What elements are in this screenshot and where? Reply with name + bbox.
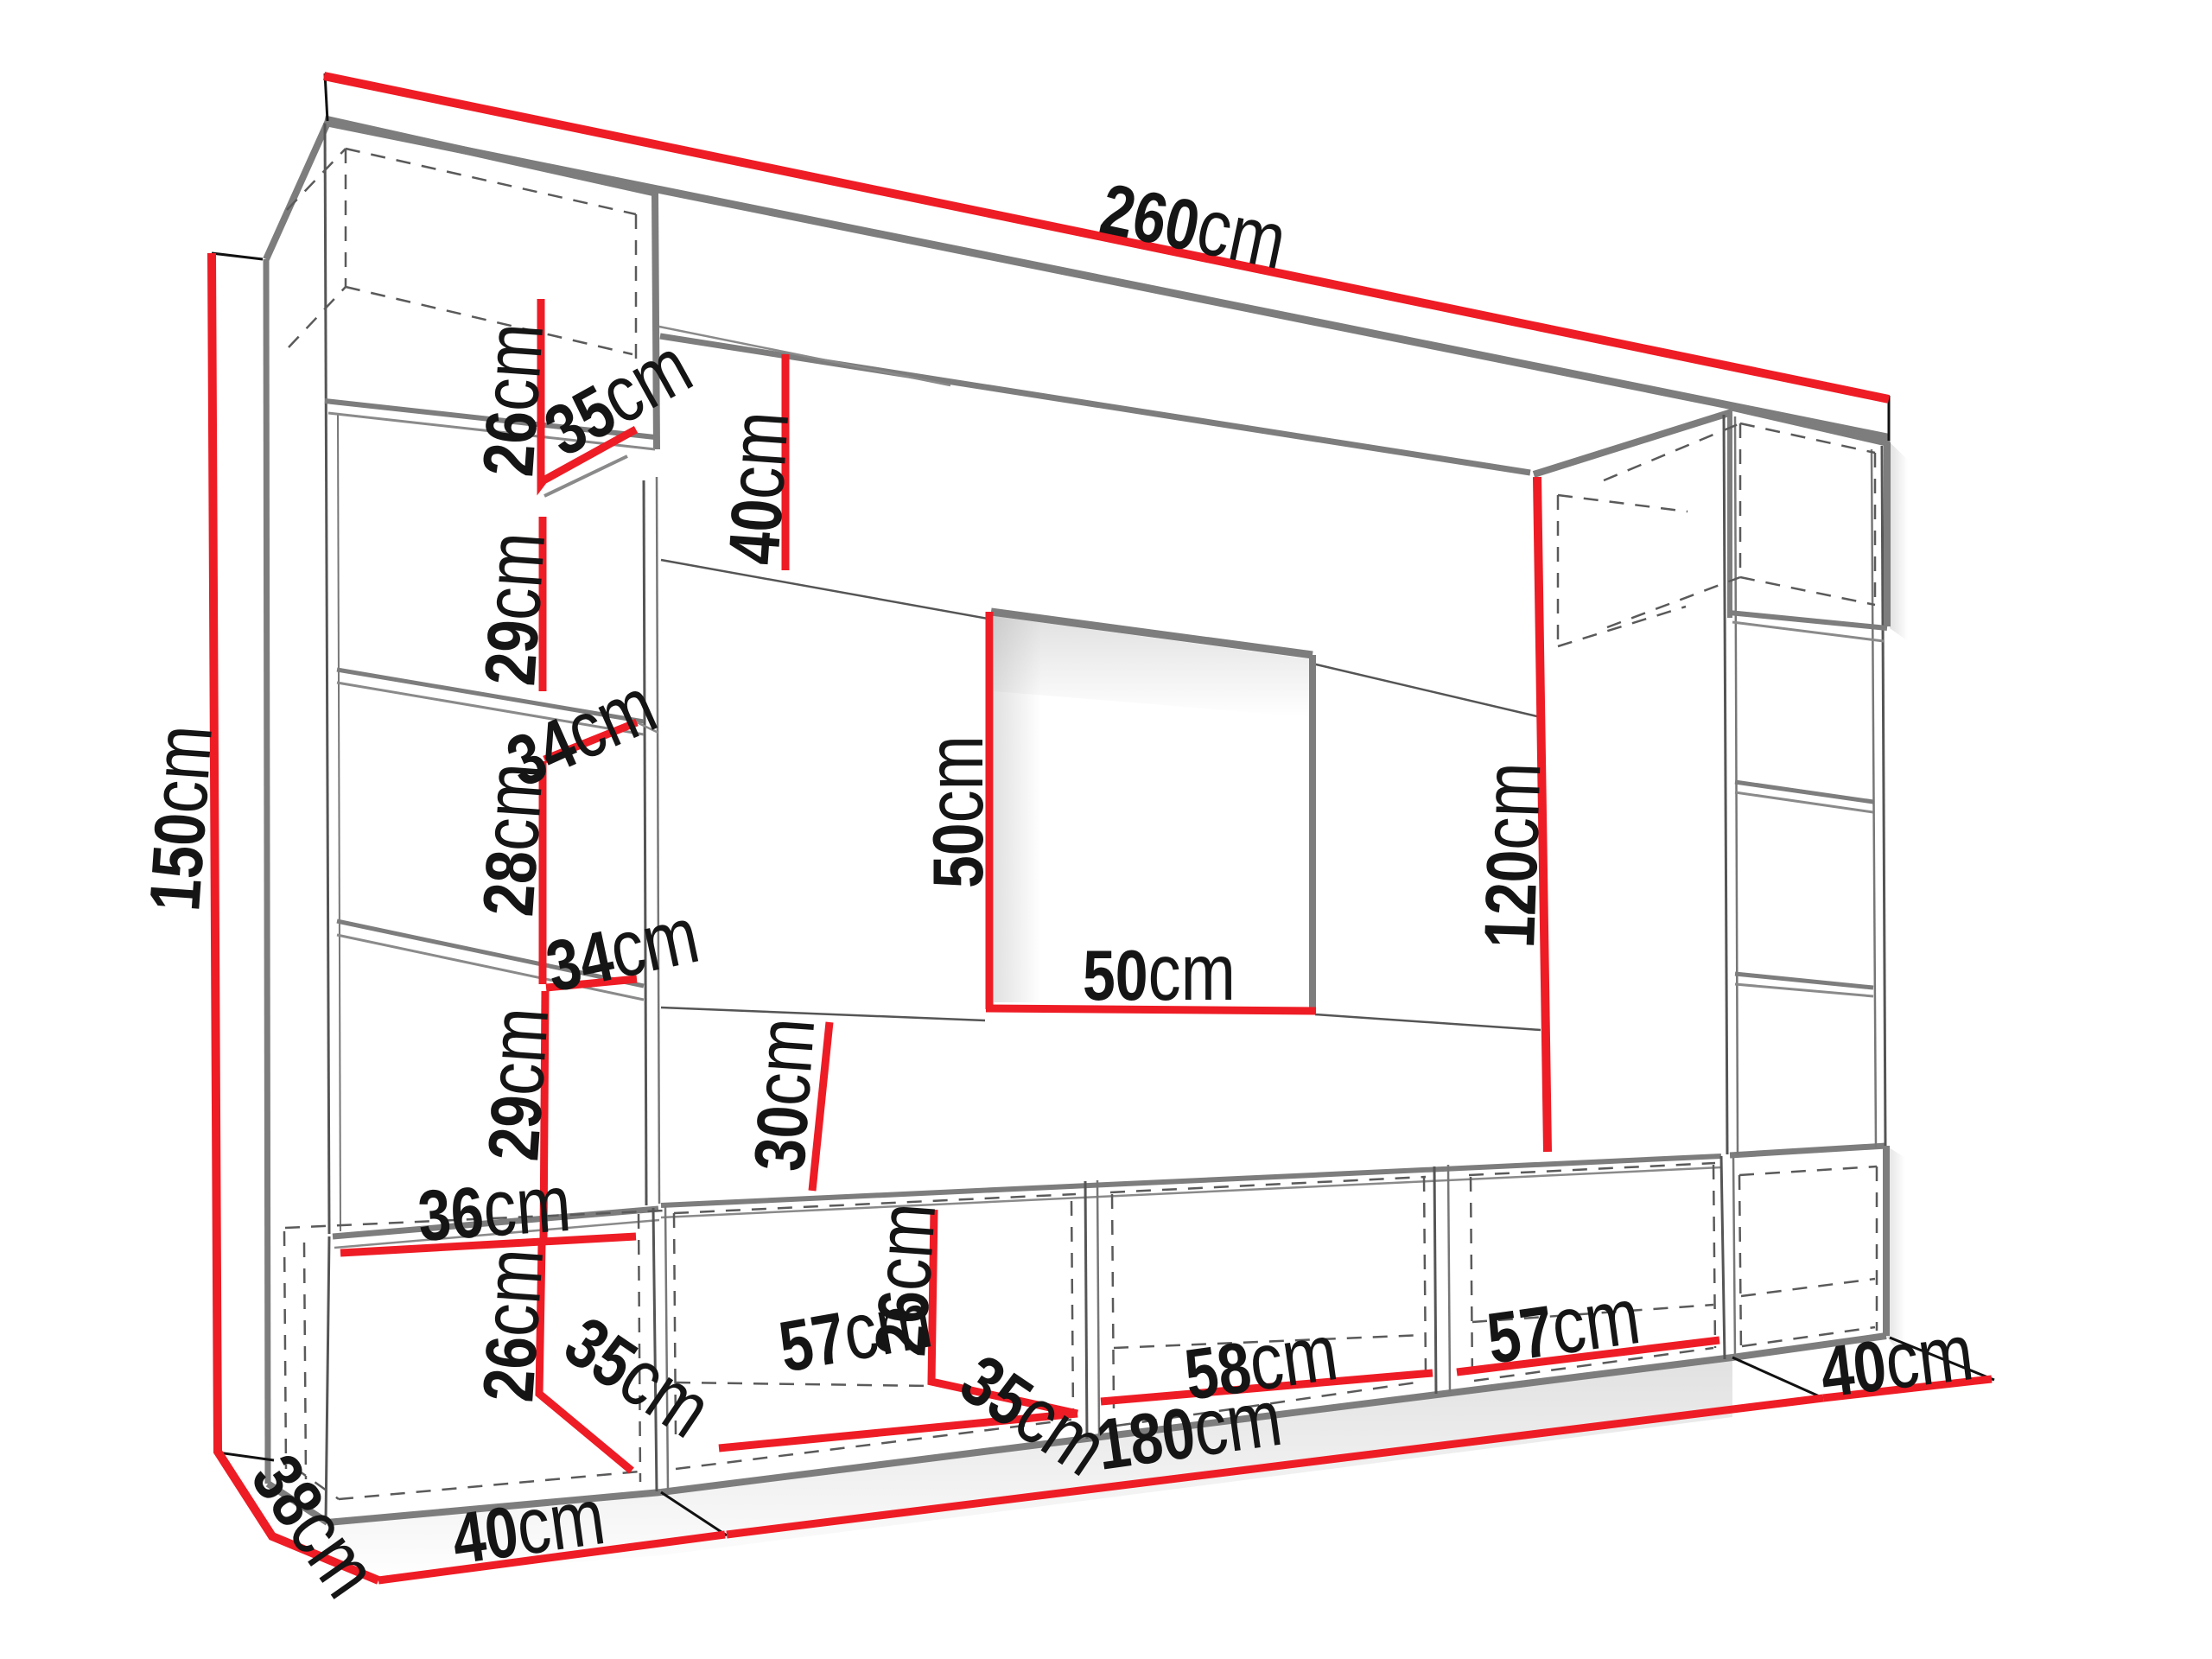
svg-text:29cm: 29cm [461, 530, 562, 689]
svg-text:50cm: 50cm [910, 735, 1000, 888]
svg-text:29cm: 29cm [465, 1005, 565, 1164]
svg-text:120cm: 120cm [1461, 760, 1557, 949]
svg-text:150cm: 150cm [126, 722, 229, 913]
svg-text:26cm: 26cm [460, 1246, 560, 1405]
svg-text:28cm: 28cm [460, 760, 560, 919]
svg-text:30cm: 30cm [731, 1015, 831, 1174]
svg-text:40cm: 40cm [705, 409, 805, 568]
svg-text:50cm: 50cm [1083, 927, 1236, 1017]
